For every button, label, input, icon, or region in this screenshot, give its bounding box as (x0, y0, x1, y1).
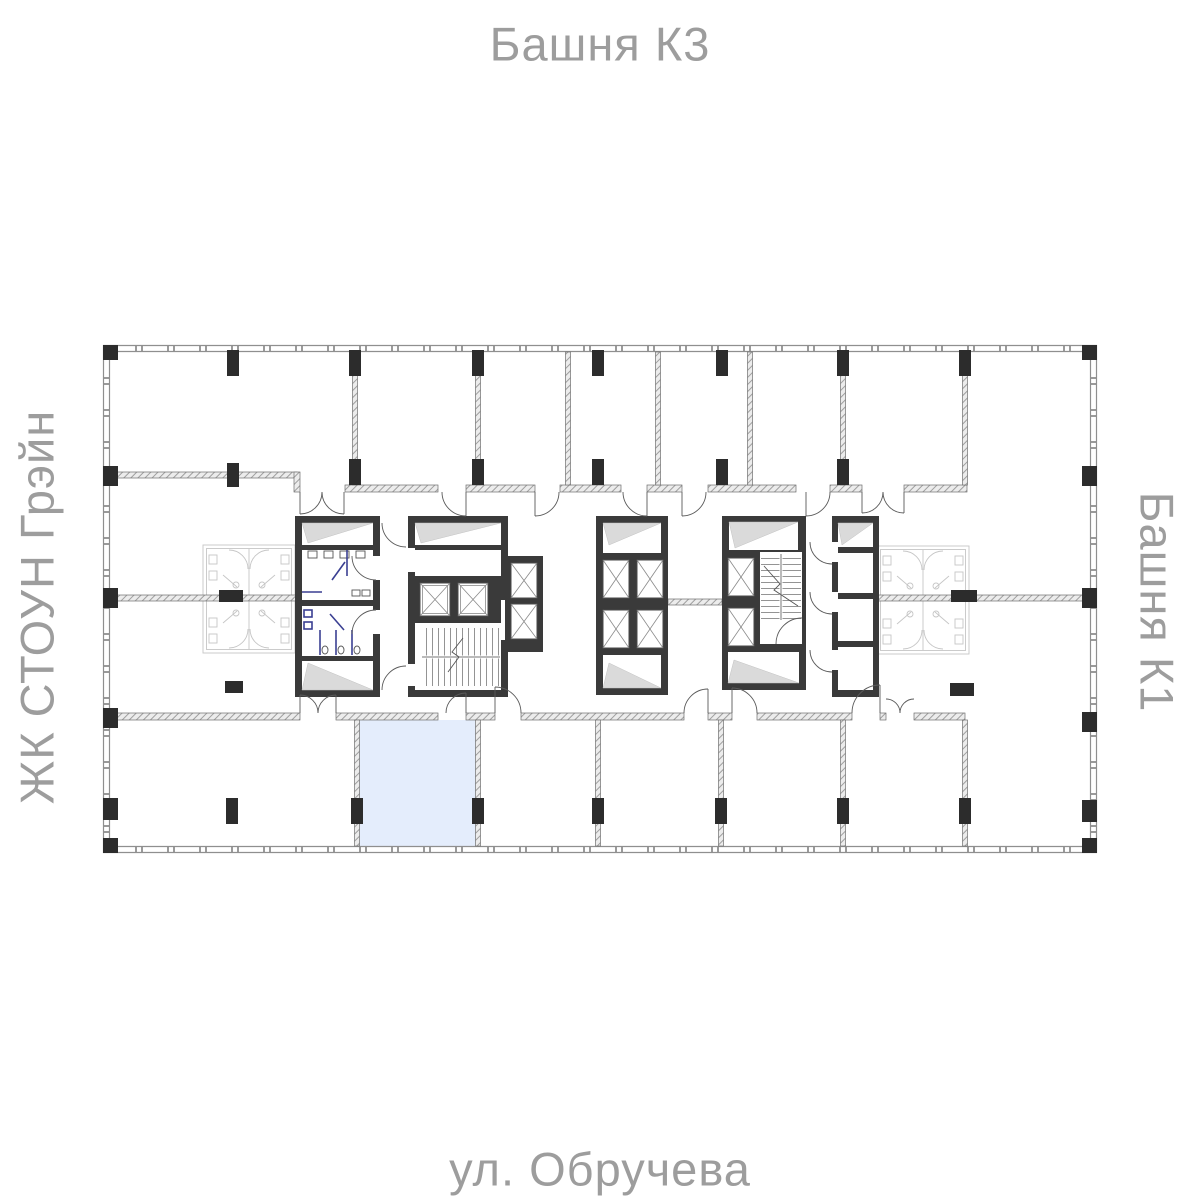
wc-fixtures-bottom (304, 610, 376, 655)
elevator-shaft-icon (728, 608, 754, 646)
building-core (295, 516, 879, 697)
floorplan-page: Башня К3 ЖК СТОУН Грэйн Башня К1 ул. Обр… (0, 0, 1200, 1200)
service-rooms-block (810, 516, 879, 697)
elevator-stair-block-west (408, 516, 508, 697)
elevator-shaft-icon (420, 583, 450, 616)
elevator-shaft-icon (637, 560, 663, 598)
highlighted-unit[interactable] (360, 720, 476, 846)
elevator-shaft-icon (505, 556, 543, 652)
wc-fixtures-top (302, 550, 376, 596)
elevator-bank-central (596, 516, 668, 695)
wc-block (295, 516, 380, 697)
elevator-shaft-icon (728, 558, 754, 596)
elevator-shaft-icon (603, 560, 629, 598)
elevator-shaft-icon (637, 610, 663, 648)
elevator-shaft-icon (458, 583, 488, 616)
stair-icon (422, 628, 500, 686)
elevator-shaft-icon (603, 610, 629, 648)
floorplan-svg (0, 0, 1200, 1200)
stair-icon (760, 552, 802, 644)
elevator-stair-block-east (722, 516, 806, 690)
